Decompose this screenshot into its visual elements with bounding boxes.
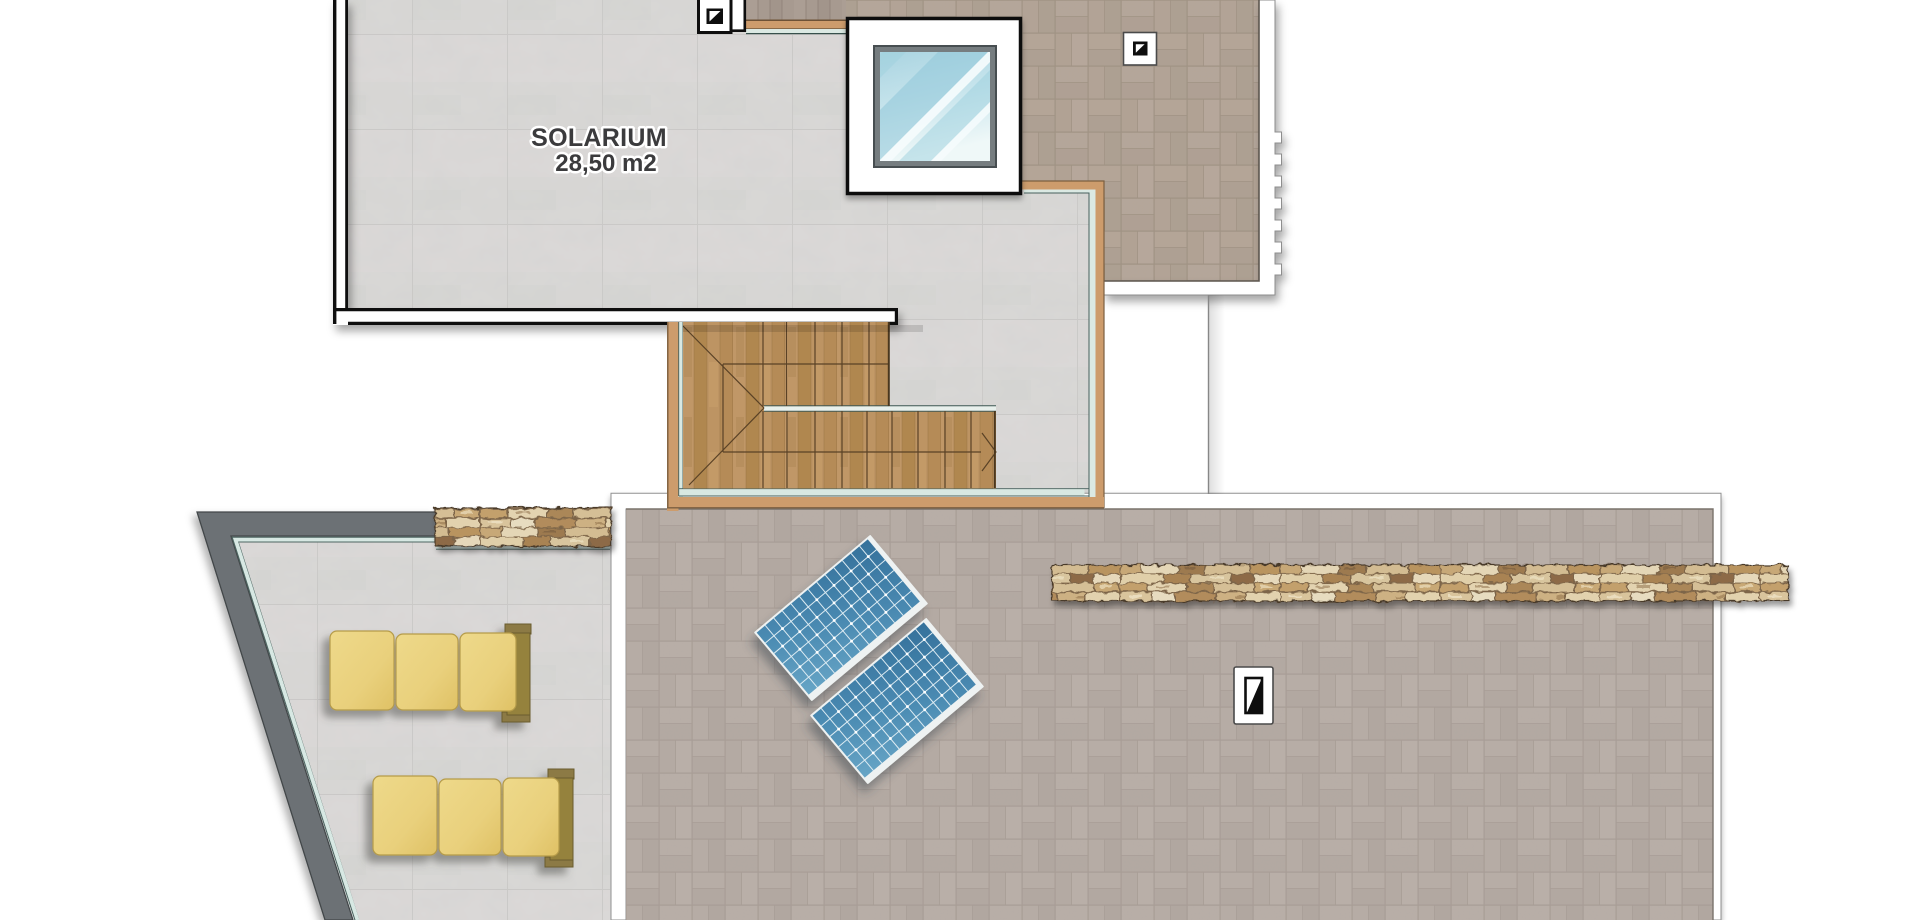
svg-text:SOLARIUM: SOLARIUM — [531, 124, 667, 152]
svg-text:28,50 m2: 28,50 m2 — [555, 150, 656, 177]
